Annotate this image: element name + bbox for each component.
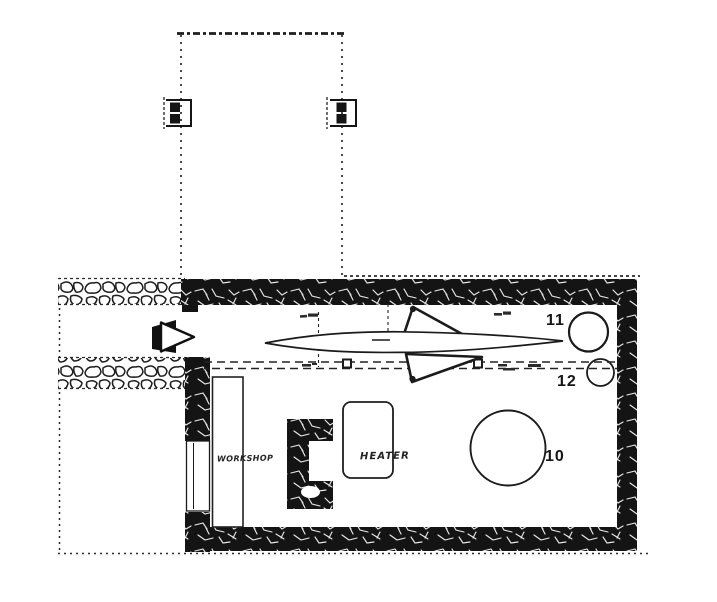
gate-post-left-icon <box>164 97 191 129</box>
marker-label-11: 11 <box>546 313 565 329</box>
entrance-arrow-icon <box>152 320 194 353</box>
heater-unit-outline <box>343 402 393 478</box>
furnace-block <box>287 419 335 509</box>
survey-square-left <box>343 360 351 368</box>
stone-wall-upper <box>58 279 185 305</box>
stone-wall-lower <box>58 358 185 389</box>
floor-plan-page: WORKSHOP HEATER 11 12 10 <box>0 0 717 602</box>
workshop-room-outline <box>213 377 244 527</box>
marker-label-10: 10 <box>545 449 565 465</box>
aircraft-plan-silhouette-icon <box>265 306 563 382</box>
heater-label: HEATER <box>360 452 410 463</box>
circle-marker-12 <box>587 359 614 386</box>
floor-plan-drawing <box>0 0 717 602</box>
door-opening <box>187 441 210 511</box>
apron-dashed-outline <box>177 34 344 280</box>
circle-marker-11 <box>569 313 608 352</box>
workshop-label: WORKSHOP <box>217 455 273 464</box>
circle-marker-10 <box>471 411 546 486</box>
marker-label-12: 12 <box>557 374 577 390</box>
